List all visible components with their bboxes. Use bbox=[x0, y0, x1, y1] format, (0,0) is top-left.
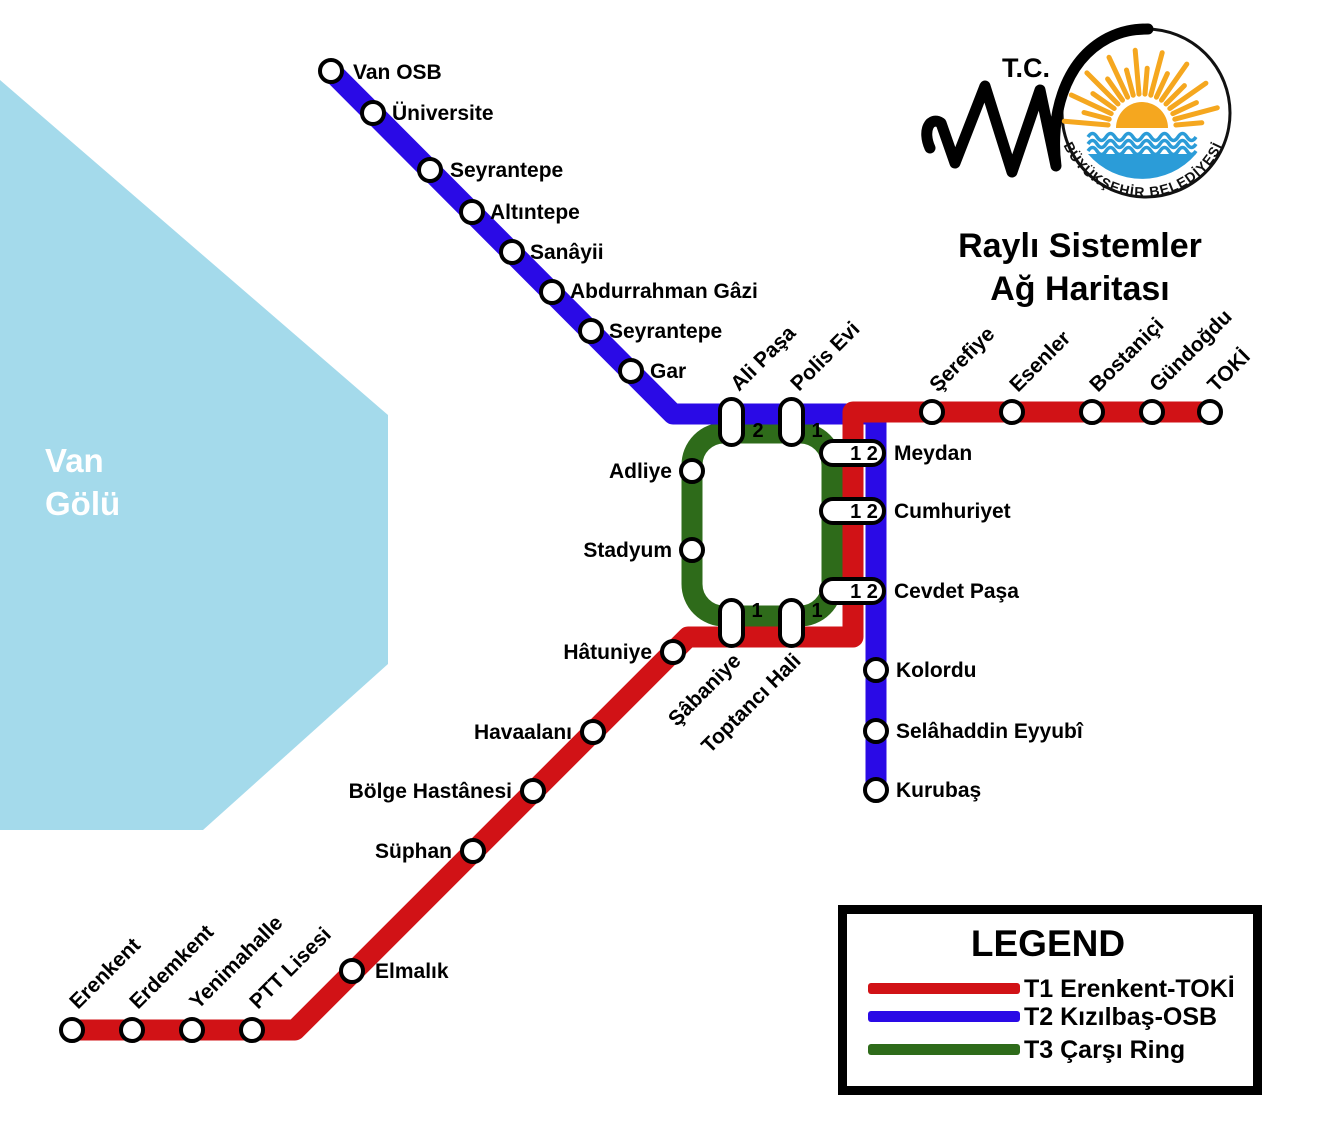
station-marker-adliye bbox=[681, 460, 703, 482]
map-canvas: Van Gölü bbox=[0, 0, 1324, 1148]
station-label-cumhuriyet: Cumhuriyet bbox=[894, 500, 1011, 523]
station-marker-abdurrahman-gazi bbox=[541, 281, 563, 303]
station-marker-yenimahalle bbox=[181, 1019, 203, 1041]
station-label-bolge-hastanesi: Bölge Hastânesi bbox=[349, 780, 512, 803]
station-marker-serefiye bbox=[921, 401, 943, 423]
station-marker-bolge-hastanesi bbox=[522, 780, 544, 802]
station-label-ali-pasa: Ali Paşa bbox=[726, 321, 800, 395]
station-label-kurubas: Kurubaş bbox=[896, 779, 981, 802]
station-label-meydan: Meydan bbox=[894, 442, 972, 465]
station-marker-gar bbox=[620, 360, 642, 382]
station-marker-altintepe bbox=[461, 201, 483, 223]
line-number-badge-sabaniye: 1 bbox=[751, 600, 762, 622]
station-label-selahaddin-eyyubi: Selâhaddin Eyyubî bbox=[896, 720, 1084, 743]
sea-waves-icon bbox=[1088, 134, 1196, 155]
station-marker-gundogdu bbox=[1141, 401, 1163, 423]
station-marker-selahaddin-eyyubi bbox=[865, 720, 887, 742]
legend-swatch-t3 bbox=[868, 1044, 1020, 1055]
station-label-toki: TOKİ bbox=[1203, 345, 1254, 396]
station-marker-hatuniye bbox=[662, 641, 684, 663]
map-title-line1: Raylı Sistemler bbox=[958, 227, 1202, 265]
legend-label-t3: T3 Çarşı Ring bbox=[1024, 1036, 1185, 1064]
station-marker-seyrantepe1 bbox=[419, 159, 441, 181]
station-label-seyrantepe1: Seyrantepe bbox=[450, 159, 563, 182]
van-municipality-logo: T.C. BÜYÜKŞEHİR BELEDİYESİ bbox=[927, 29, 1230, 200]
station-label-elmalik: Elmalık bbox=[375, 960, 449, 983]
lake-label-line1: Van bbox=[45, 442, 104, 479]
station-marker-seyrantepe2 bbox=[580, 320, 602, 342]
station-label-sanayii: Sanâyii bbox=[530, 241, 604, 264]
station-marker-elmalik bbox=[341, 960, 363, 982]
station-marker-havaalani bbox=[582, 721, 604, 743]
station-marker-ptt-lisesi bbox=[241, 1019, 263, 1041]
line-number-badge-cevdet-pasa: 1 2 bbox=[850, 581, 878, 603]
station-label-serefiye: Şerefiye bbox=[925, 322, 999, 396]
legend-title: LEGEND bbox=[971, 923, 1125, 964]
line-number-badge-meydan: 1 2 bbox=[850, 443, 878, 465]
station-marker-suphan bbox=[462, 840, 484, 862]
station-marker-erdemkent bbox=[121, 1019, 143, 1041]
interchange-pill-sabaniye bbox=[720, 600, 743, 646]
station-label-seyrantepe2: Seyrantepe bbox=[609, 320, 722, 343]
transit-map-page: Van Gölü bbox=[0, 0, 1324, 1148]
station-label-altintepe: Altıntepe bbox=[490, 201, 580, 224]
line-number-badge-ali-pasa: 2 bbox=[752, 420, 763, 442]
line-number-badge-toptanci-hali: 1 bbox=[811, 600, 822, 622]
station-marker-esenler bbox=[1001, 401, 1023, 423]
station-marker-universite bbox=[362, 102, 384, 124]
station-marker-bostanici bbox=[1081, 401, 1103, 423]
station-label-havaalani: Havaalanı bbox=[474, 721, 572, 744]
station-label-hatuniye: Hâtuniye bbox=[563, 641, 652, 664]
legend-label-t2: T2 Kızılbaş-OSB bbox=[1024, 1003, 1217, 1031]
station-marker-kurubas bbox=[865, 779, 887, 801]
line-number-badge-polis-evi: 1 bbox=[811, 420, 822, 442]
station-marker-erenkent bbox=[61, 1019, 83, 1041]
station-label-abdurrahman-gazi: Abdurrahman Gâzi bbox=[570, 280, 758, 303]
station-label-esenler: Esenler bbox=[1005, 327, 1075, 397]
station-label-kolordu: Kolordu bbox=[896, 659, 976, 682]
station-label-suphan: Süphan bbox=[375, 840, 452, 863]
interchange-pill-polis-evi bbox=[780, 399, 803, 445]
interchange-pill-toptanci-hali bbox=[780, 600, 803, 646]
station-marker-kolordu bbox=[865, 659, 887, 681]
station-marker-stadyum bbox=[681, 539, 703, 561]
station-marker-van-osb bbox=[320, 60, 342, 82]
legend-swatch-t2 bbox=[868, 1011, 1020, 1022]
station-label-stadyum: Stadyum bbox=[583, 539, 672, 562]
legend-label-t1: T1 Erenkent-TOKİ bbox=[1024, 975, 1235, 1003]
station-label-adliye: Adliye bbox=[609, 460, 672, 483]
station-label-van-osb: Van OSB bbox=[353, 61, 442, 84]
legend-swatch-t1 bbox=[868, 983, 1020, 994]
station-label-cevdet-pasa: Cevdet Paşa bbox=[894, 580, 1019, 603]
t3-ring-line bbox=[692, 433, 832, 616]
sun-disc-icon bbox=[1116, 102, 1168, 128]
interchange-pill-ali-pasa bbox=[720, 399, 743, 445]
station-label-universite: Üniversite bbox=[392, 102, 494, 125]
legend-box: LEGEND T1 Erenkent-TOKİ T2 Kızılbaş-OSB … bbox=[843, 910, 1258, 1091]
station-marker-toki bbox=[1199, 401, 1221, 423]
logo-tc-text: T.C. bbox=[1002, 53, 1050, 83]
map-title-line2: Ağ Haritası bbox=[990, 270, 1170, 308]
station-marker-sanayii bbox=[501, 241, 523, 263]
lake-label-line2: Gölü bbox=[45, 485, 120, 522]
line-number-badge-cumhuriyet: 1 2 bbox=[850, 501, 878, 523]
station-label-polis-evi: Polis Evi bbox=[786, 317, 864, 395]
station-label-gar: Gar bbox=[650, 360, 686, 383]
